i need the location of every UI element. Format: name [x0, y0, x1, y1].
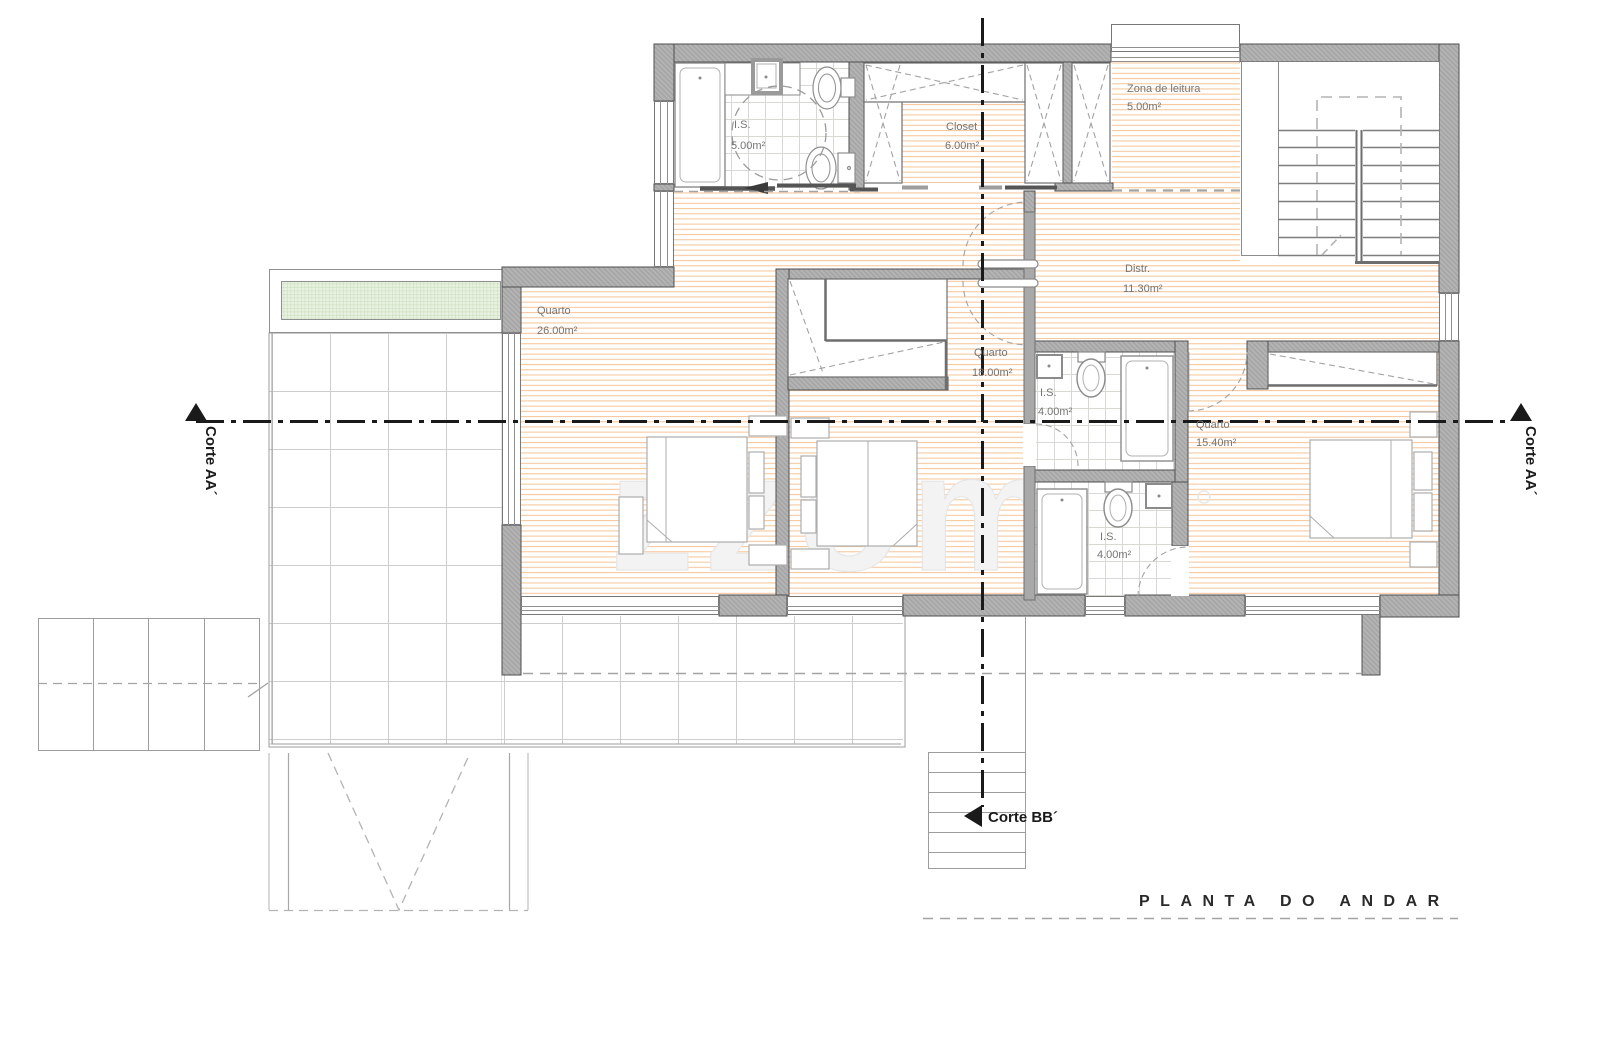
svg-text:Quarto: Quarto: [1196, 419, 1230, 431]
svg-text:18.00m²: 18.00m²: [972, 367, 1013, 379]
svg-text:6.00m²: 6.00m²: [945, 140, 980, 152]
svg-text:Corte BB´: Corte BB´: [988, 809, 1058, 826]
svg-text:Quarto: Quarto: [974, 347, 1008, 359]
svg-text:I.S.: I.S.: [1040, 387, 1057, 399]
svg-text:4.00m²: 4.00m²: [1038, 406, 1073, 418]
svg-text:Quarto: Quarto: [537, 305, 571, 317]
svg-text:Closet: Closet: [946, 121, 977, 133]
svg-text:5.00m²: 5.00m²: [1127, 101, 1162, 113]
svg-text:26.00m²: 26.00m²: [537, 325, 578, 337]
svg-text:Distr.: Distr.: [1125, 263, 1150, 275]
svg-text:11.30m²: 11.30m²: [1123, 283, 1163, 295]
svg-text:Corte AA´: Corte AA´: [202, 426, 219, 495]
svg-text:I.S.: I.S.: [1100, 531, 1117, 543]
svg-text:Corte AA´: Corte AA´: [1522, 426, 1539, 495]
svg-text:5.00m²: 5.00m²: [731, 140, 766, 152]
svg-text:4.00m²: 4.00m²: [1097, 549, 1132, 561]
svg-text:Zona de leitura: Zona de leitura: [1127, 83, 1201, 95]
svg-text:PLANTA DO ANDAR: PLANTA DO ANDAR: [1139, 893, 1450, 910]
svg-text:15.40m²: 15.40m²: [1196, 437, 1237, 449]
svg-text:I.S.: I.S.: [734, 119, 751, 131]
